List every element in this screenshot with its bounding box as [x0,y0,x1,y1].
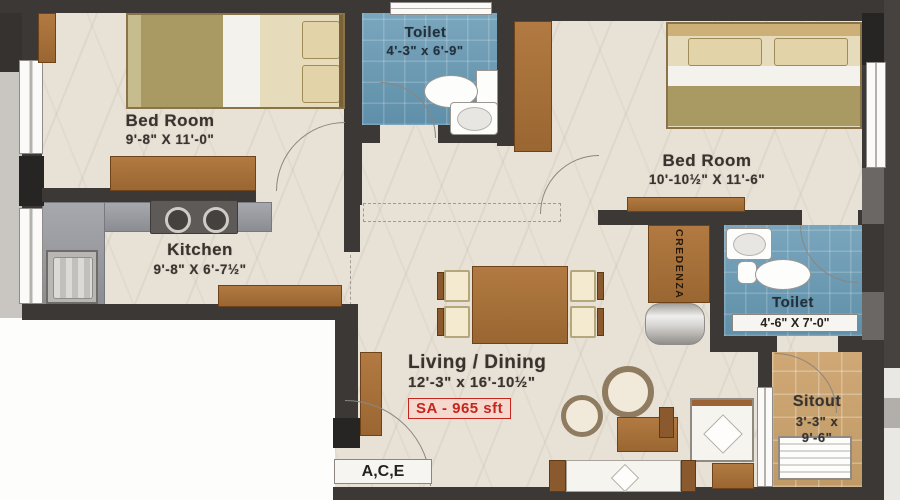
window-sitout-rail [757,387,773,487]
bedroom1-bedside-table [38,13,56,63]
wall-toilet2-bottom-a [710,336,777,352]
bedroom1-name-label: Bed Room [75,111,265,131]
sink-basin [53,257,93,299]
bedroom2-name-label: Bed Room [607,151,807,171]
toilet2-cistern [737,261,757,284]
kitchen-open-dashed-line [350,255,352,305]
wall-bedroom2-south-a [598,210,802,225]
sofa-armrest [681,460,696,492]
toilet1-basin-bowl [457,107,492,131]
toilet2-basin-bowl [733,233,766,256]
sofa-diamond [611,464,639,492]
bed1-sheet [223,15,260,107]
sofa [566,460,681,492]
dining-chair [570,306,596,338]
wall-right-gray-2 [862,292,884,340]
toilet1-washbasin [450,102,498,135]
kitchen-sink [46,250,98,304]
kitchen-cabinet [218,285,342,307]
side-table [712,463,754,489]
bed2-sheet [668,66,860,86]
water-drum [645,303,705,345]
bed1-headboard [339,15,343,107]
kitchen-dims-label: 9'-8" X 6'-7½" [105,262,295,277]
toilet1-name-label: Toilet [368,24,483,41]
dining-chair-back [437,272,444,300]
entrance-label: A,C,E [334,459,432,484]
wall-toilet1-bottom-a [344,125,380,143]
floor-plan: CREDENZA Bed Room 9'-8" X 11'-0" Toilet … [0,0,900,500]
wall-kitchen-right [344,205,360,252]
tv-unit [690,398,754,462]
bedroom1-dims-label: 9'-8" X 11'-0" [73,132,267,147]
dining-chair [444,270,470,302]
wall-toilet2-left [710,225,724,352]
bed1-pillow [302,21,340,59]
dining-table [472,266,568,344]
shaft-above-toilet1 [390,2,492,15]
credenza-label: CREDENZA [673,229,685,299]
bed1-blanket-fold [128,15,141,107]
sitout-dims-line1: 3'-3" x [782,414,852,429]
bedroom2-dims-label: 10'-10½" X 11'-6" [597,172,817,187]
column-left-middle [19,156,44,206]
bedroom2-dresser [627,197,745,212]
toilet1-dims-label: 4'-3" x 6'-9" [360,43,490,58]
plant-stand [659,407,674,438]
bedroom2-bed [666,22,862,129]
bed1-pillow [302,65,340,103]
living-name-label: Living / Dining [408,352,628,374]
wall-bedroom1-right [344,13,362,205]
toilet2-washbasin [726,228,772,260]
column-right-top [862,13,884,65]
outside-right-bottom [884,368,900,500]
dining-chair-back [597,272,604,300]
dining-chair-back [437,308,444,336]
toilet2-commode [755,259,811,290]
window-kitchen [19,208,43,304]
toilet2-dims-label: 4'-6" X 7'-0" [732,314,858,332]
kitchen-stove [150,200,238,234]
wall-sitout-west-top [758,352,772,387]
tv-unit-top [692,400,752,406]
bed2-headboard [668,24,860,36]
dining-chair [444,306,470,338]
dining-chair-back [597,308,604,336]
wall-top-right [498,0,884,21]
bedroom1-wardrobe [110,156,256,191]
outside-bottom-left-cutout [0,318,335,500]
sofa-armrest [549,460,566,492]
bed2-blanket [668,86,860,126]
bedroom1-bed [126,13,345,109]
bedroom2-wardrobe [514,21,552,152]
kitchen-name-label: Kitchen [110,240,290,260]
loft-dashed-outline [363,203,561,222]
bed2-pillow [774,38,848,66]
sitout-dims-line2: 9'-6" [782,430,852,445]
outside-right-top [884,0,900,368]
credenza-cabinet: CREDENZA [648,225,710,303]
window-bedroom2 [866,62,886,168]
bed1-blanket [128,15,223,107]
sitout-name-label: Sitout [777,393,857,411]
dining-chair [570,270,596,302]
saleable-area-badge: SA - 965 sft [408,398,511,419]
bed2-pillow [688,38,762,66]
tv-unit-diamond [703,414,743,454]
window-bedroom1 [19,60,43,154]
pouf-stool [561,395,603,437]
living-dims-label: 12'-3" x 16'-10½" [408,374,638,391]
outside-right-ledge [884,398,900,428]
stove-burner [165,207,191,233]
toilet2-name-label: Toilet [738,294,848,311]
stove-burner [203,207,229,233]
wall-right-gray-1 [862,168,884,224]
